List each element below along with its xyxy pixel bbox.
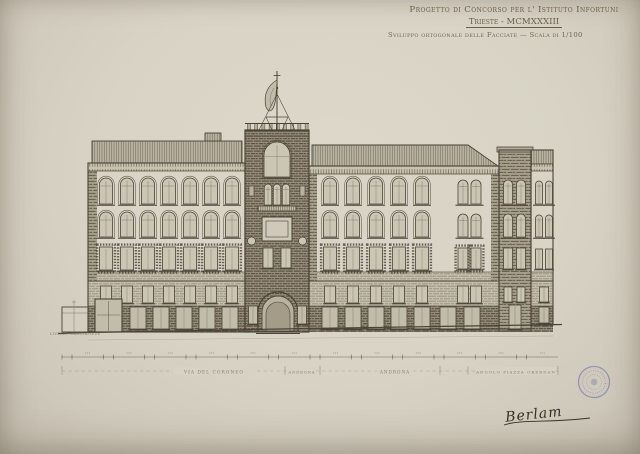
drawing-sheet: Progetto di Concorso per l' Istituto Inf… xyxy=(0,0,640,454)
dimension-line xyxy=(61,353,558,360)
building-facade xyxy=(58,71,562,340)
street-label-androna: ANDRONA xyxy=(379,370,410,375)
ground-level-note: LIVELLO MARCIAPIEDE xyxy=(50,332,101,336)
street-label-via-del-coroneo: VIA DEL CORONEO xyxy=(183,371,244,376)
street-label-piazza-oberdan: ANGOLO PIAZZA OBERDAN xyxy=(475,370,556,375)
ink-stamp xyxy=(576,364,611,399)
street-label-androna-small: ANDRONA xyxy=(287,370,315,374)
elevation-drawing: VIA DEL CORONEO ANDRONA ANDRONA ANGOLO P… xyxy=(0,0,640,454)
street-labels: VIA DEL CORONEO ANDRONA ANDRONA ANGOLO P… xyxy=(62,366,558,376)
